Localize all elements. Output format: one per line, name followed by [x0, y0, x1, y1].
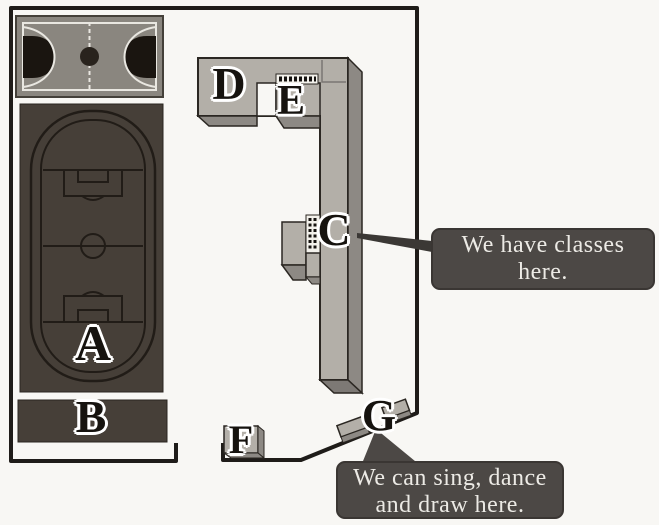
place-label-e: E [277, 80, 305, 122]
place-label-g: G [362, 394, 396, 438]
entrance-c-step-front [306, 277, 320, 284]
building-notch [257, 83, 276, 116]
entrance-c-step-block [306, 253, 320, 277]
place-label-c: C [317, 207, 350, 253]
callout-classes: We have classes here. [431, 228, 655, 290]
place-label-b: B [76, 394, 107, 440]
court-center-circle [80, 47, 99, 66]
place-label-d: D [212, 61, 245, 107]
place-label-a: A [75, 318, 111, 368]
place-label-f: F [229, 420, 253, 460]
callout-classes-line1: We have classes [433, 232, 653, 259]
callout-classes-connector [357, 233, 432, 252]
entrance-c-front-face [282, 265, 306, 280]
callout-art-line2: and draw here. [338, 492, 562, 519]
entrance-c [282, 215, 320, 284]
callout-classes-line2: here. [433, 259, 653, 286]
building-front-face-d [198, 116, 257, 126]
callout-art-line1: We can sing, dance [338, 465, 562, 492]
callout-art: We can sing, dance and draw here. [336, 461, 564, 519]
entrance-c-block [282, 222, 306, 265]
basketball-court [16, 16, 163, 97]
campus-map: We have classes here. We can sing, dance… [0, 0, 659, 525]
